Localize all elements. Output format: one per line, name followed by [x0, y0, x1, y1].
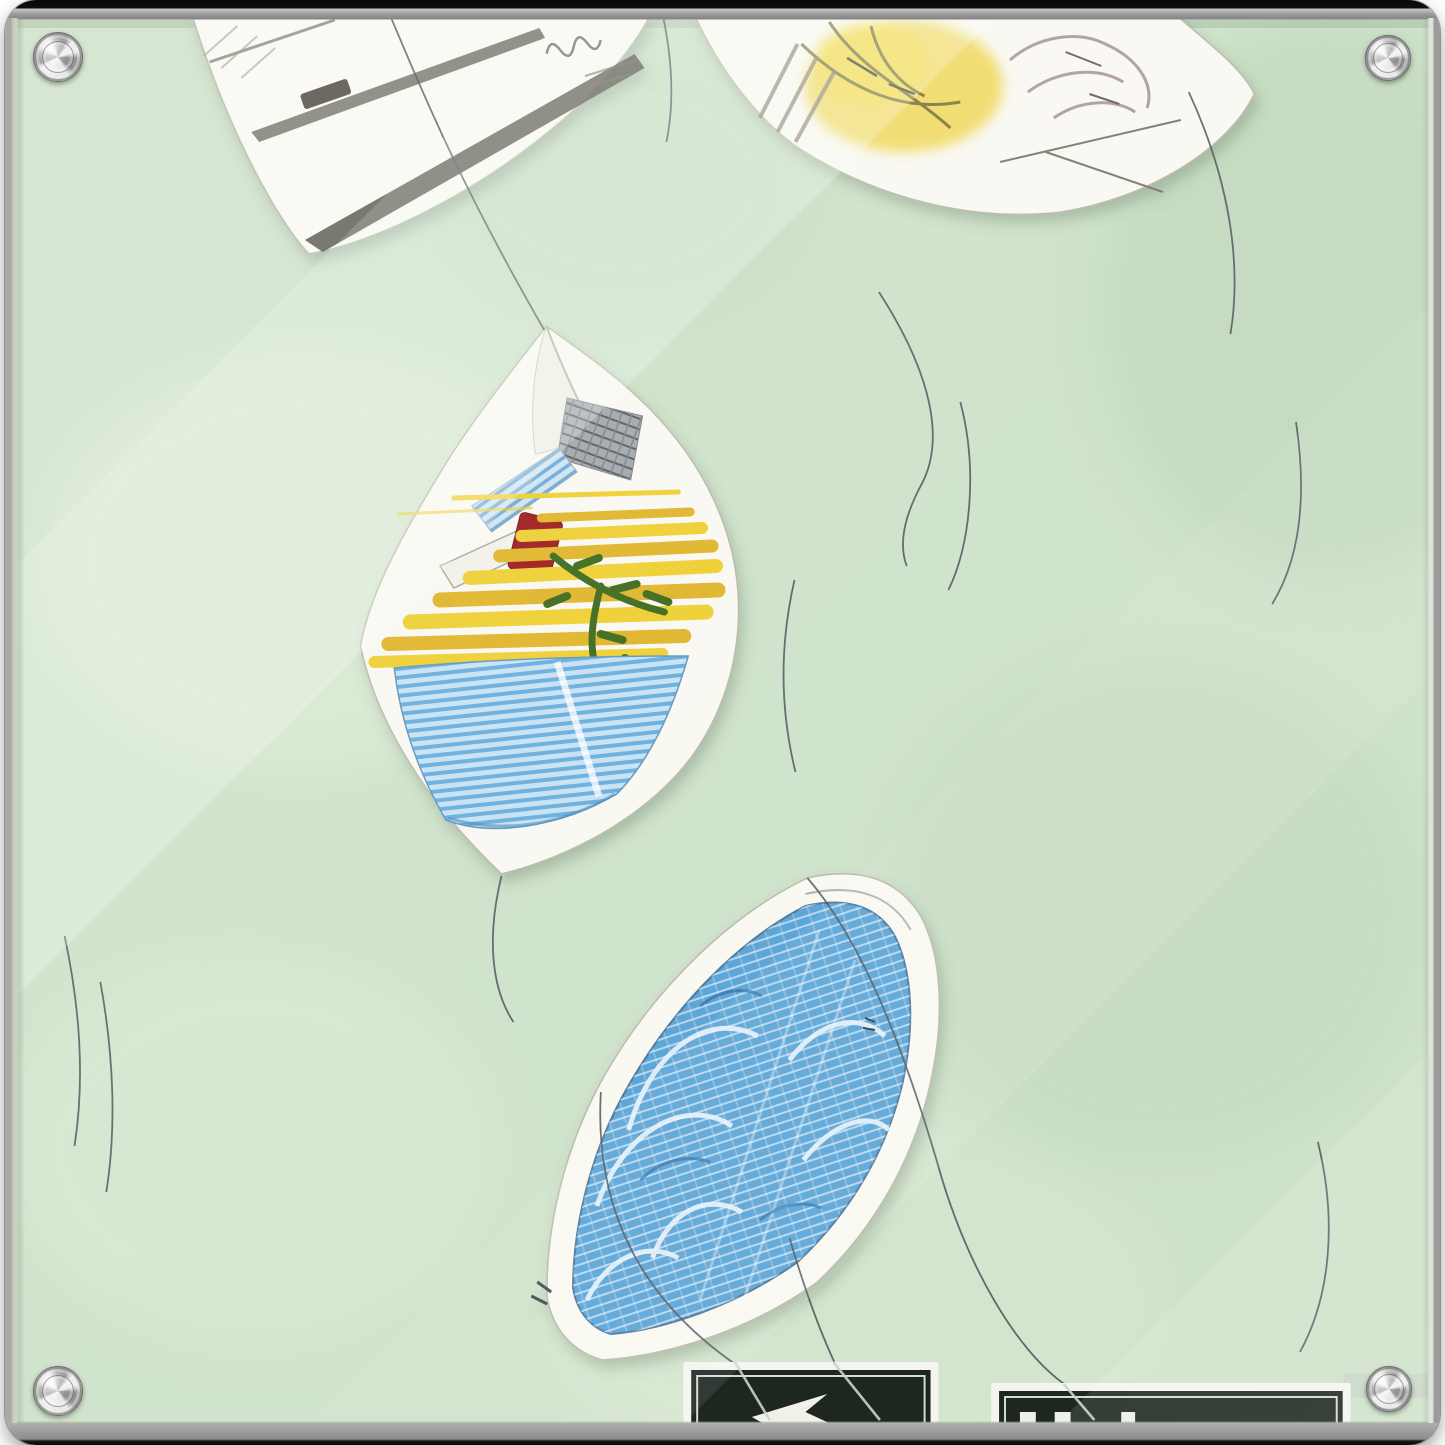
frame-edge-right [1422, 18, 1440, 1423]
frame-edge-top [5, 0, 1440, 20]
frame-edge-left [5, 18, 25, 1423]
frame-edge-bottom [5, 1421, 1440, 1445]
standoff-screw-bottom-left [33, 1366, 83, 1416]
standoff-screw-top-left [33, 32, 83, 82]
artwork-svg [5, 0, 1440, 1445]
standoff-screw-bottom-right [1366, 1366, 1412, 1412]
standoff-screw-top-right [1365, 35, 1411, 81]
artwork-canvas [5, 0, 1440, 1445]
acrylic-panel [5, 0, 1440, 1445]
product-photo [0, 0, 1445, 1445]
